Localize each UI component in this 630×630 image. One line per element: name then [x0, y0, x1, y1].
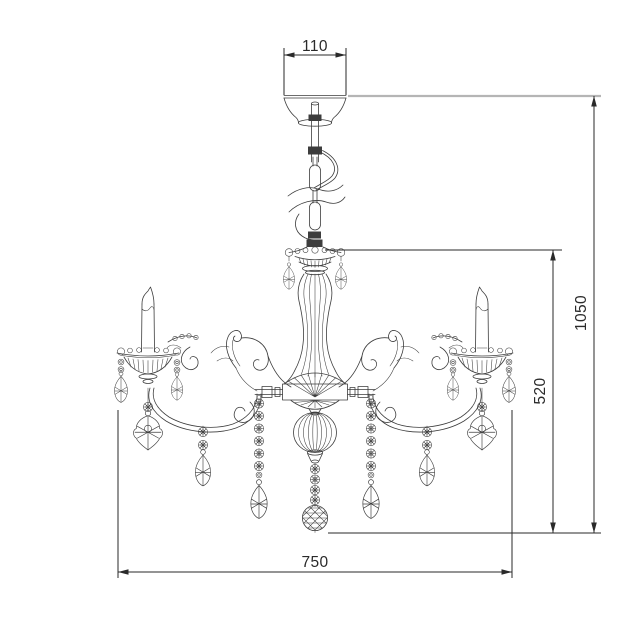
- dimension-fixture-height: 520: [325, 250, 562, 533]
- chain: [310, 157, 321, 230]
- hanging-rod: [308, 102, 322, 162]
- fixture-height-label: 520: [532, 377, 549, 404]
- canopy-width-label: 110: [302, 38, 328, 55]
- bobeche-center-pendant: [134, 388, 163, 450]
- arm-scrollwork: [167, 330, 291, 422]
- dimension-canopy-width: 110: [284, 38, 346, 95]
- candle-arm-left: [115, 247, 308, 518]
- bobeche-inner-pendant: [171, 360, 183, 401]
- overall-height-label: 1050: [573, 295, 590, 331]
- crown-pendant: [283, 247, 308, 289]
- fixture-width-label: 750: [301, 554, 328, 571]
- canopy: [284, 96, 346, 127]
- glass-ball: [294, 413, 337, 464]
- dimension-overall-height: 1050: [573, 96, 597, 533]
- arm-pendant-chain: [195, 426, 210, 486]
- power-cable: [288, 151, 345, 241]
- center-column: [285, 274, 345, 384]
- drawing-canvas: 110 1050 520 750: [0, 0, 630, 630]
- chandelier-drawing: [115, 96, 516, 535]
- dimension-fixture-width: 750: [118, 410, 601, 578]
- candle-arm-right: [322, 247, 515, 518]
- candle: [142, 287, 155, 352]
- bottom-bead-chain: [310, 463, 319, 507]
- bobeche: [117, 348, 181, 384]
- crown: [295, 232, 335, 275]
- long-bead-chain: [251, 396, 267, 519]
- center-hub: [283, 373, 348, 415]
- bobeche-outer-pendant: [115, 359, 128, 402]
- chandelier-technical-drawing: 110 1050 520 750: [0, 0, 630, 630]
